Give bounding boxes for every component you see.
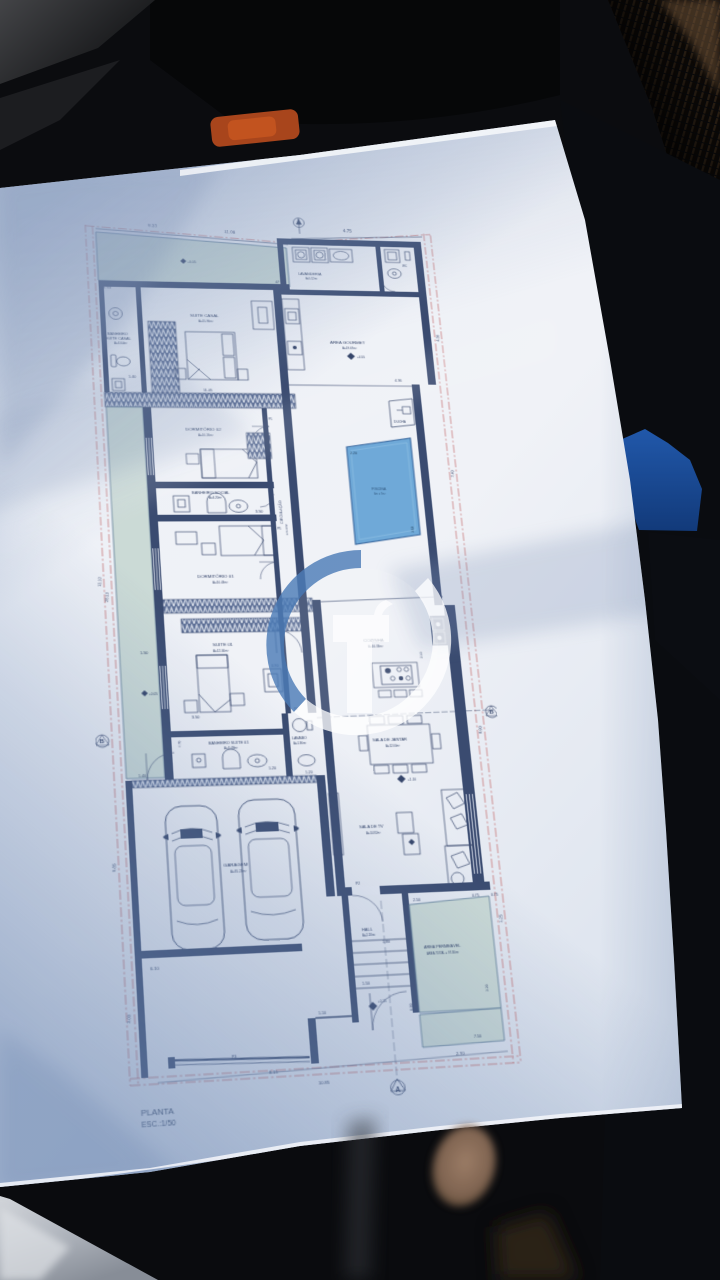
svg-text:7.50: 7.50 xyxy=(474,1034,482,1039)
svg-text:3.00: 3.00 xyxy=(429,530,434,536)
svg-text:1.20: 1.20 xyxy=(268,766,276,771)
svg-text:SALA DE JANTAR: SALA DE JANTAR xyxy=(372,737,407,742)
svg-text:A=19.67m²: A=19.67m² xyxy=(342,346,357,350)
svg-text:6.75: 6.75 xyxy=(113,398,120,402)
svg-text:A=14.82m²: A=14.82m² xyxy=(366,831,381,836)
svg-text:2.20: 2.20 xyxy=(350,451,358,455)
svg-text:P1: P1 xyxy=(268,417,273,421)
svg-text:3.20: 3.20 xyxy=(484,984,489,992)
svg-text:DORMITÓRIO 01: DORMITÓRIO 01 xyxy=(197,573,235,578)
svg-text:2.50: 2.50 xyxy=(413,898,421,903)
svg-text:A=5.06m²: A=5.06m² xyxy=(284,524,289,536)
svg-text:28.13: 28.13 xyxy=(105,592,110,602)
svg-text:+0.15: +0.15 xyxy=(378,999,387,1004)
svg-text:A=2.28m²: A=2.28m² xyxy=(362,932,376,937)
svg-text:+1.10: +1.10 xyxy=(408,777,417,782)
svg-text:4.36: 4.36 xyxy=(436,335,440,342)
svg-text:A=10.43m²: A=10.43m² xyxy=(212,580,228,584)
svg-text:LAVANDERIA: LAVANDERIA xyxy=(298,272,322,276)
svg-text:3.58: 3.58 xyxy=(410,526,415,532)
svg-text:BANHEIRO SUITE 01: BANHEIRO SUITE 01 xyxy=(208,740,248,745)
svg-text:+4.55: +4.55 xyxy=(357,355,366,359)
svg-text:SUITE CASAL: SUITE CASAL xyxy=(106,337,132,341)
svg-text:5.85: 5.85 xyxy=(112,864,117,872)
svg-text:A=10.26m²: A=10.26m² xyxy=(198,433,213,437)
svg-text:WC: WC xyxy=(402,264,407,268)
svg-text:A=12.00m²: A=12.00m² xyxy=(385,743,400,748)
svg-text:3.50: 3.50 xyxy=(192,715,200,720)
svg-text:ÁREA GOURMET: ÁREA GOURMET xyxy=(330,340,366,345)
svg-text:SUITE 01: SUITE 01 xyxy=(212,642,233,648)
svg-text:P3: P3 xyxy=(232,1054,237,1059)
svg-text:0.75: 0.75 xyxy=(491,892,499,897)
svg-text:A=15.96m²: A=15.96m² xyxy=(198,319,213,323)
svg-text:A=3.48m²: A=3.48m² xyxy=(224,746,238,751)
svg-text:1.40: 1.40 xyxy=(128,375,136,379)
svg-text:+0.05: +0.05 xyxy=(187,260,196,264)
svg-text:A=35.23m²: A=35.23m² xyxy=(230,869,247,874)
svg-text:COZINHA: COZINHA xyxy=(363,637,384,642)
svg-text:11.10: 11.10 xyxy=(97,577,102,587)
svg-text:CIRCULAÇÃO: CIRCULAÇÃO xyxy=(277,500,284,524)
svg-text:1.50: 1.50 xyxy=(140,651,148,655)
svg-text:1.70: 1.70 xyxy=(177,741,182,748)
svg-text:8.33: 8.33 xyxy=(148,223,158,228)
svg-text:A=1.96m²: A=1.96m² xyxy=(293,741,306,746)
svg-text:A=10.33m²: A=10.33m² xyxy=(368,644,384,648)
svg-text:0.90: 0.90 xyxy=(271,664,279,668)
svg-text:GARAGEM: GARAGEM xyxy=(223,861,249,868)
svg-text:A: A xyxy=(395,1086,402,1095)
svg-text:1.40: 1.40 xyxy=(138,774,146,779)
svg-text:4.36: 4.36 xyxy=(394,379,402,383)
svg-text:0.80: 0.80 xyxy=(409,1003,414,1011)
svg-text:DORMITÓRIO 02: DORMITÓRIO 02 xyxy=(185,427,222,432)
svg-text:P1: P1 xyxy=(294,707,299,711)
svg-text:1.20: 1.20 xyxy=(305,770,313,775)
svg-text:7.40: 7.40 xyxy=(451,470,455,477)
svg-text:B: B xyxy=(489,710,494,716)
svg-text:P1: P1 xyxy=(277,527,282,531)
svg-text:A=12.00m²: A=12.00m² xyxy=(213,649,229,653)
svg-text:1.10: 1.10 xyxy=(318,1011,326,1016)
svg-text:A=5.12m²: A=5.12m² xyxy=(305,277,317,281)
svg-text:11.08: 11.08 xyxy=(224,229,236,235)
svg-text:+0.05: +0.05 xyxy=(149,692,158,696)
svg-text:10.85: 10.85 xyxy=(318,1080,330,1085)
svg-text:P2: P2 xyxy=(355,881,360,886)
svg-text:8.15: 8.15 xyxy=(269,1070,278,1075)
svg-text:BANHEIRO: BANHEIRO xyxy=(107,332,128,336)
svg-text:DUCHA: DUCHA xyxy=(394,420,407,424)
svg-text:LAVABO: LAVABO xyxy=(292,736,307,741)
svg-text:1.50: 1.50 xyxy=(362,981,370,986)
svg-text:3.10: 3.10 xyxy=(419,652,424,659)
svg-text:HALL: HALL xyxy=(362,927,373,932)
svg-text:P1: P1 xyxy=(285,624,290,628)
svg-text:47: 47 xyxy=(275,280,279,284)
svg-text:A=3.64m²: A=3.64m² xyxy=(114,341,128,345)
svg-text:B: B xyxy=(99,739,104,746)
svg-text:2.70: 2.70 xyxy=(456,1051,465,1056)
svg-text:11.45: 11.45 xyxy=(203,388,212,392)
svg-text:1.25: 1.25 xyxy=(499,915,504,923)
svg-text:SUITE CASAL: SUITE CASAL xyxy=(190,313,220,318)
svg-text:PISCINA: PISCINA xyxy=(371,487,387,491)
svg-text:SALA DE TV: SALA DE TV xyxy=(359,824,384,829)
svg-text:8.90: 8.90 xyxy=(478,726,483,734)
svg-text:4.75: 4.75 xyxy=(343,229,353,234)
svg-text:3.00: 3.00 xyxy=(127,1015,132,1024)
svg-text:3.50: 3.50 xyxy=(255,510,263,514)
svg-text:ESC.:1/50: ESC.:1/50 xyxy=(141,1119,177,1130)
svg-text:6.10: 6.10 xyxy=(150,966,159,971)
svg-text:PLANTA: PLANTA xyxy=(141,1108,175,1119)
svg-text:A=4.20m²: A=4.20m² xyxy=(209,496,223,500)
svg-text:6m x 7m²: 6m x 7m² xyxy=(374,492,386,496)
